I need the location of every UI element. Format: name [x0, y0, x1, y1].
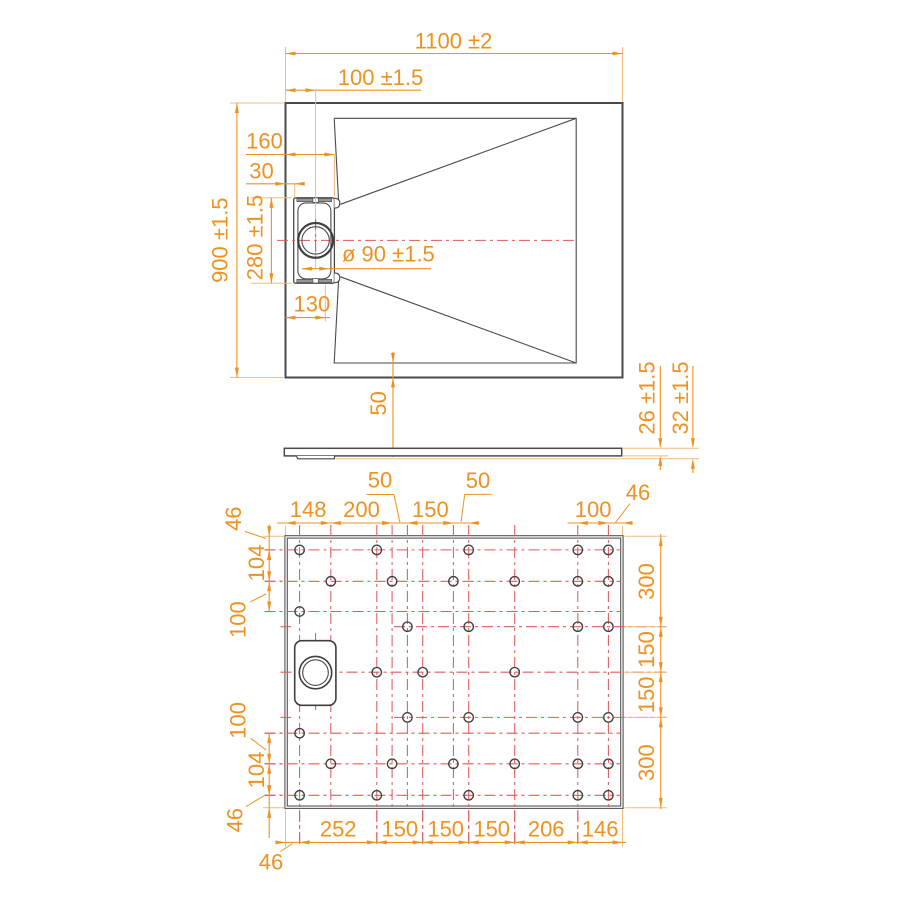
svg-text:150: 150 — [381, 817, 418, 842]
svg-text:150: 150 — [634, 631, 659, 668]
svg-text:50: 50 — [368, 467, 392, 492]
svg-text:150: 150 — [473, 817, 510, 842]
svg-text:100: 100 — [226, 702, 251, 739]
svg-text:146: 146 — [582, 817, 619, 842]
svg-text:280 ±1.5: 280 ±1.5 — [243, 195, 268, 280]
svg-text:30: 30 — [249, 158, 273, 183]
svg-text:104: 104 — [244, 752, 269, 789]
svg-text:100: 100 — [575, 497, 612, 522]
svg-text:46: 46 — [223, 808, 248, 832]
svg-text:200: 200 — [343, 497, 380, 522]
svg-text:160: 160 — [246, 129, 283, 154]
svg-text:50: 50 — [366, 391, 391, 415]
svg-text:900 ±1.5: 900 ±1.5 — [208, 197, 233, 282]
svg-text:46: 46 — [221, 506, 246, 530]
svg-text:130: 130 — [294, 292, 331, 317]
svg-text:206: 206 — [528, 817, 565, 842]
svg-text:1100 ±2: 1100 ±2 — [415, 29, 493, 54]
svg-text:46: 46 — [259, 850, 283, 875]
svg-text:300: 300 — [634, 563, 659, 600]
svg-text:ø 90 ±1.5: ø 90 ±1.5 — [342, 242, 435, 267]
svg-text:100 ±1.5: 100 ±1.5 — [338, 65, 423, 90]
svg-text:46: 46 — [626, 480, 650, 505]
svg-text:26 ±1.5: 26 ±1.5 — [634, 361, 659, 434]
svg-text:150: 150 — [427, 817, 464, 842]
svg-text:32 ±1.5: 32 ±1.5 — [668, 361, 693, 434]
svg-text:148: 148 — [290, 497, 327, 522]
svg-text:150: 150 — [412, 497, 449, 522]
svg-text:150: 150 — [634, 676, 659, 713]
svg-text:100: 100 — [226, 601, 251, 638]
svg-text:252: 252 — [320, 817, 357, 842]
svg-text:104: 104 — [244, 545, 269, 582]
svg-text:300: 300 — [634, 744, 659, 781]
svg-text:50: 50 — [466, 468, 490, 493]
